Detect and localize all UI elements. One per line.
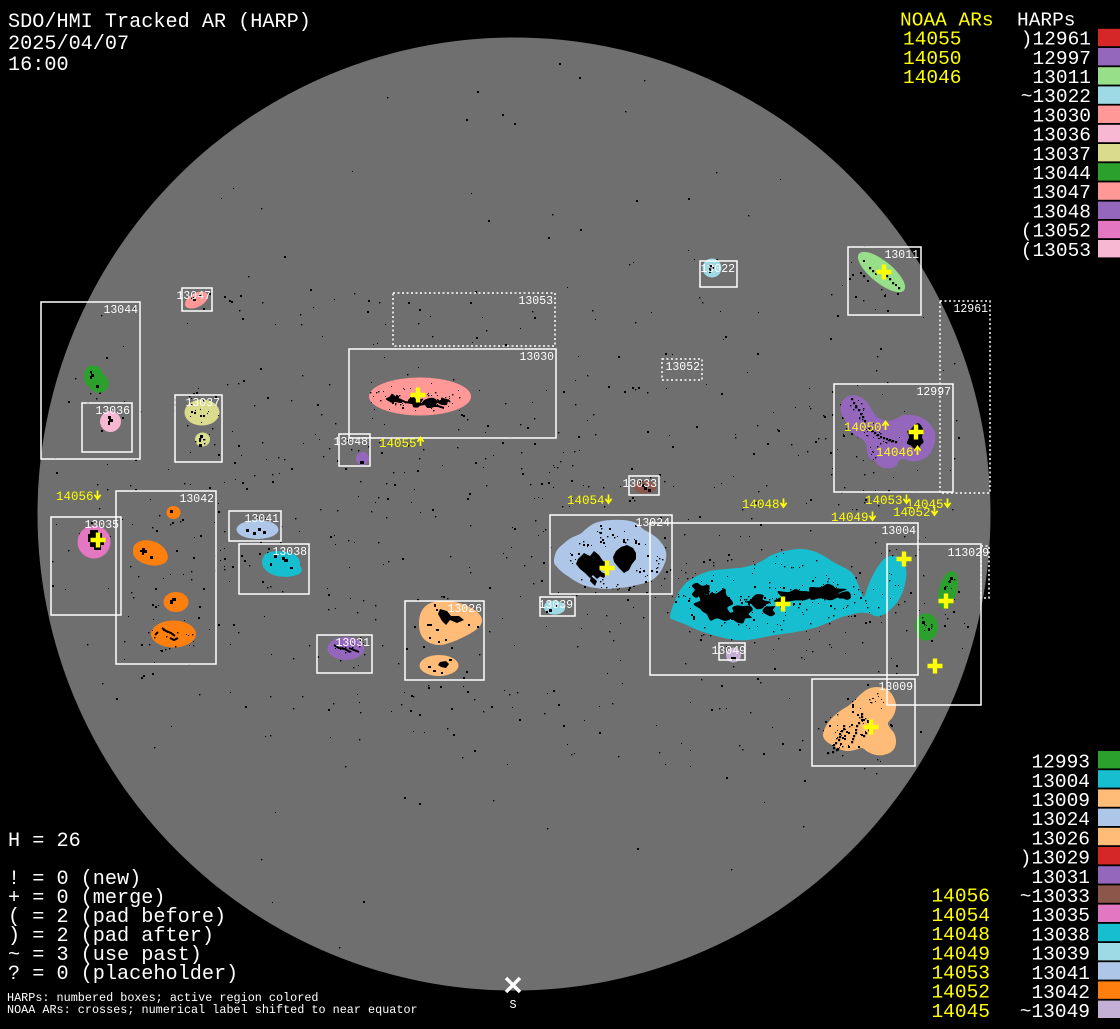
svg-text:13033: 13033 bbox=[622, 478, 657, 491]
svg-text:14049: 14049 bbox=[831, 511, 869, 525]
svg-text:12997: 12997 bbox=[916, 386, 951, 399]
svg-text:SDO/HMI Tracked AR (HARP): SDO/HMI Tracked AR (HARP) bbox=[8, 11, 311, 34]
svg-text:14046: 14046 bbox=[903, 67, 962, 89]
svg-text:14054: 14054 bbox=[567, 494, 605, 508]
svg-text:13022: 13022 bbox=[700, 263, 735, 276]
svg-text:13011: 13011 bbox=[884, 249, 919, 262]
svg-text:12961: 12961 bbox=[953, 303, 988, 316]
svg-text:13042: 13042 bbox=[179, 493, 214, 506]
svg-text:13053: 13053 bbox=[518, 295, 553, 308]
svg-text:14056: 14056 bbox=[56, 490, 94, 504]
svg-text:14048: 14048 bbox=[742, 498, 780, 512]
svg-text:13037: 13037 bbox=[185, 397, 220, 410]
svg-text:14045: 14045 bbox=[931, 1001, 990, 1023]
svg-text:? = 0 (placeholder): ? = 0 (placeholder) bbox=[8, 963, 238, 986]
svg-text:H = 26: H = 26 bbox=[8, 830, 81, 853]
svg-text:(13053: (13053 bbox=[1021, 240, 1091, 262]
svg-text:14050: 14050 bbox=[844, 421, 882, 435]
svg-text:13048: 13048 bbox=[333, 436, 368, 449]
svg-text:113029: 113029 bbox=[948, 547, 990, 560]
svg-text:NOAA ARs: crosses; numerical l: NOAA ARs: crosses; numerical label shift… bbox=[7, 1003, 418, 1017]
svg-text:14046: 14046 bbox=[876, 446, 914, 460]
svg-text:S: S bbox=[509, 998, 516, 1012]
svg-text:16:00: 16:00 bbox=[8, 54, 69, 77]
svg-text:13049: 13049 bbox=[711, 645, 746, 658]
svg-text:13039: 13039 bbox=[538, 599, 573, 612]
svg-text:13004: 13004 bbox=[881, 525, 916, 538]
svg-text:14055: 14055 bbox=[379, 437, 417, 451]
svg-text:13044: 13044 bbox=[103, 304, 138, 317]
svg-text:14052: 14052 bbox=[893, 506, 931, 520]
svg-text:13036: 13036 bbox=[95, 405, 130, 418]
svg-text:13047: 13047 bbox=[176, 290, 211, 303]
svg-text:13035: 13035 bbox=[84, 519, 119, 532]
svg-text:13030: 13030 bbox=[519, 351, 554, 364]
svg-text:2025/04/07: 2025/04/07 bbox=[8, 33, 129, 56]
svg-text:13052: 13052 bbox=[665, 361, 700, 374]
svg-text:13038: 13038 bbox=[272, 546, 307, 559]
svg-text:13031: 13031 bbox=[335, 637, 370, 650]
svg-text:13026: 13026 bbox=[447, 603, 482, 616]
svg-text:13009: 13009 bbox=[878, 681, 913, 694]
svg-text:13041: 13041 bbox=[244, 513, 279, 526]
svg-text:~13049: ~13049 bbox=[1020, 1001, 1090, 1023]
